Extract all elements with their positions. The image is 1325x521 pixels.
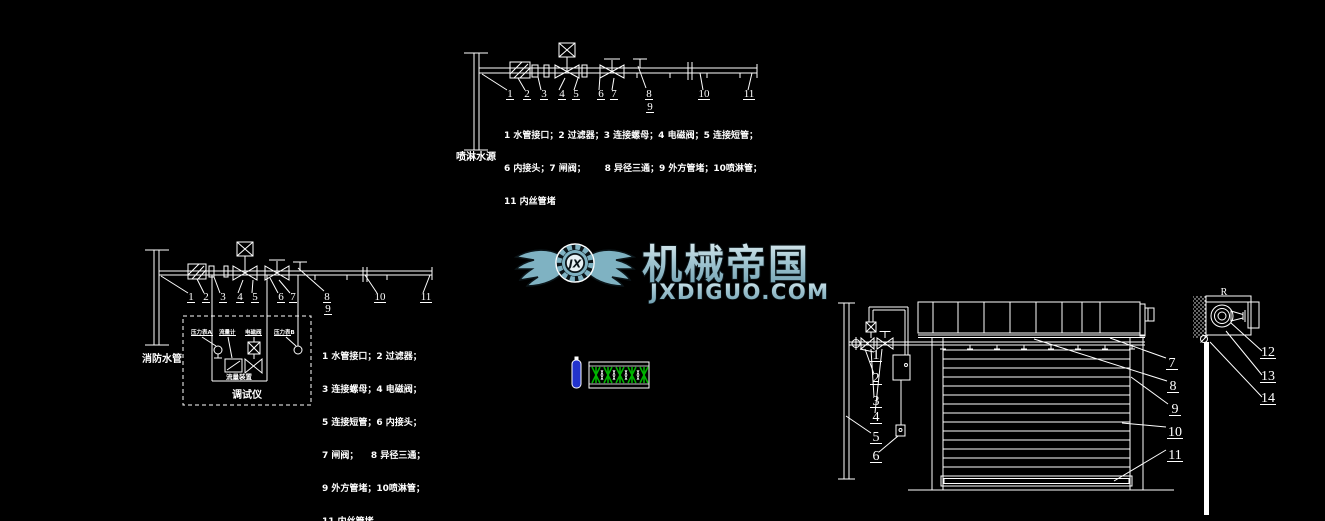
roller-housing: [918, 302, 1154, 336]
bottom-bar: [941, 476, 1132, 486]
part-number: 4: [559, 88, 565, 100]
gate-valve-symbol: [265, 260, 289, 280]
legend-line: 9 外方管堵；10喷淋管；: [322, 484, 425, 495]
part-number: 6: [278, 291, 284, 303]
device-label: 流量装置: [226, 372, 253, 381]
top-legend: 1 水管接口；2 过滤器；3 连接螺母；4 电磁阀；5 连接短管； 6 内接头；…: [504, 109, 762, 230]
stippled-wall: [1193, 296, 1206, 338]
lintel-rails: [918, 335, 1145, 338]
horizontal-pipe: [159, 267, 432, 280]
legend-line: 6 内接头；7 闸阀； 8 异径三通；9 外方管堵；10喷淋管；: [504, 164, 762, 175]
part-number: 11: [421, 291, 432, 303]
reducing-tee-symbol: [633, 59, 647, 68]
part-number: 3: [220, 291, 226, 303]
part-number: 1: [873, 348, 880, 363]
part-number: 4: [237, 291, 243, 303]
part-number: 4: [873, 410, 880, 425]
legend-line: 1 水管接口；2 过滤器；: [322, 352, 425, 363]
supply-riser-pipe: [838, 303, 855, 479]
legend-line: 5 连接短管；6 内接头；: [322, 418, 425, 429]
part-number: 7: [611, 88, 617, 100]
part-number: 5: [573, 88, 579, 100]
emblem-initials: JX: [567, 258, 582, 271]
legend-line: 7 闸阀； 8 异径三通；: [322, 451, 425, 462]
green-coil-pattern: [592, 367, 648, 383]
control-valve-symbol: [245, 359, 262, 373]
component-label: 流量计: [219, 328, 236, 336]
curtain-slats: [943, 350, 1130, 467]
pressure-gauge-symbol: [214, 346, 222, 358]
pipe-union-symbol: [688, 62, 692, 80]
part-number: 10: [699, 88, 711, 100]
leader-lines-detail: [1210, 323, 1262, 397]
legend-line: 11 内丝管堵: [504, 197, 762, 208]
part-number: 1: [507, 88, 513, 100]
part-number: 8: [646, 88, 652, 100]
part-number: 5: [873, 430, 880, 445]
roller-shutter-diagram: 1 2 3 4 5 6: [838, 286, 1325, 521]
part-number: 6: [598, 88, 604, 100]
solenoid-valve-symbol: [248, 342, 260, 359]
cad-drawing-canvas: 1 2 3 4 5 6 7 8 9 10 11 1 水管接口；2 过滤器；3 连…: [0, 0, 1325, 521]
tester-label: 调试仪: [232, 388, 263, 401]
spray-water-source-label: 喷淋水源: [456, 148, 496, 163]
filter-symbol: [510, 62, 530, 78]
small-symbols: [556, 352, 656, 397]
sprinkler-detail: R 12 13 14: [1193, 287, 1276, 515]
part-number: 5: [252, 291, 258, 303]
left-legend: 1 水管接口；2 过滤器； 3 连接螺母；4 电磁阀； 5 连接短管；6 内接头…: [322, 330, 425, 521]
watermark-logo: JX 机械帝国 JXDIGUO.COM: [512, 224, 827, 304]
component-label: 压力表A: [191, 328, 213, 336]
pressure-gauge-symbol: [294, 275, 302, 354]
component-label: 压力表B: [274, 328, 295, 336]
part-numbers-right: 7 8 9 10 11: [1166, 356, 1183, 463]
part-number: 8: [324, 291, 330, 303]
part-number: 12: [1261, 345, 1275, 360]
part-number: 2: [203, 291, 209, 303]
part-number: 13: [1261, 369, 1275, 384]
part-number: 2: [524, 88, 530, 100]
fire-water-pipe-label: 消防水管: [142, 350, 182, 365]
part-number: 11: [1168, 448, 1181, 463]
leader-lines: [161, 268, 430, 293]
valve-train: [852, 322, 893, 350]
legend-line: 11 内丝管堵: [322, 517, 425, 521]
part-number: 6: [873, 449, 880, 464]
legend-line: 1 水管接口；2 过滤器；3 连接螺母；4 电磁阀；5 连接短管；: [504, 131, 762, 142]
winged-gear-icon: JX: [516, 244, 634, 286]
component-label: 电磁阀: [245, 328, 262, 336]
nozzle-symbol: [1211, 305, 1245, 327]
part-number: 10: [1168, 425, 1182, 440]
part-number: 9: [325, 303, 331, 315]
part-number: 7: [1169, 356, 1176, 371]
gear-icon: JX: [556, 244, 594, 282]
part-number: 8: [1170, 379, 1177, 394]
part-number: 10: [375, 291, 387, 303]
flow-meter-symbol: [225, 359, 242, 372]
part-number: 14: [1261, 391, 1275, 406]
part-number: 3: [873, 394, 880, 409]
part-number: 7: [290, 291, 296, 303]
legend-line: 3 连接螺母；4 电磁阀；: [322, 385, 425, 396]
part-number: 3: [541, 88, 547, 100]
fire-water-pipe: [145, 250, 169, 345]
domain-text: JXDIGUO.COM: [648, 280, 827, 304]
drop-pipe: [1204, 342, 1209, 515]
coil-box-icon: [589, 362, 649, 388]
label-leader-lines: [202, 337, 296, 358]
part-number: 1: [188, 291, 194, 303]
part-number: 11: [744, 88, 755, 100]
part-number: 9: [1172, 402, 1179, 417]
solenoid-valve-symbol: [233, 242, 257, 280]
part-number: 2: [873, 371, 880, 386]
part-numbers: 1 2 3 4 5 6 7 8 9 10 11: [187, 291, 432, 315]
blue-capsule-icon: [572, 357, 581, 389]
